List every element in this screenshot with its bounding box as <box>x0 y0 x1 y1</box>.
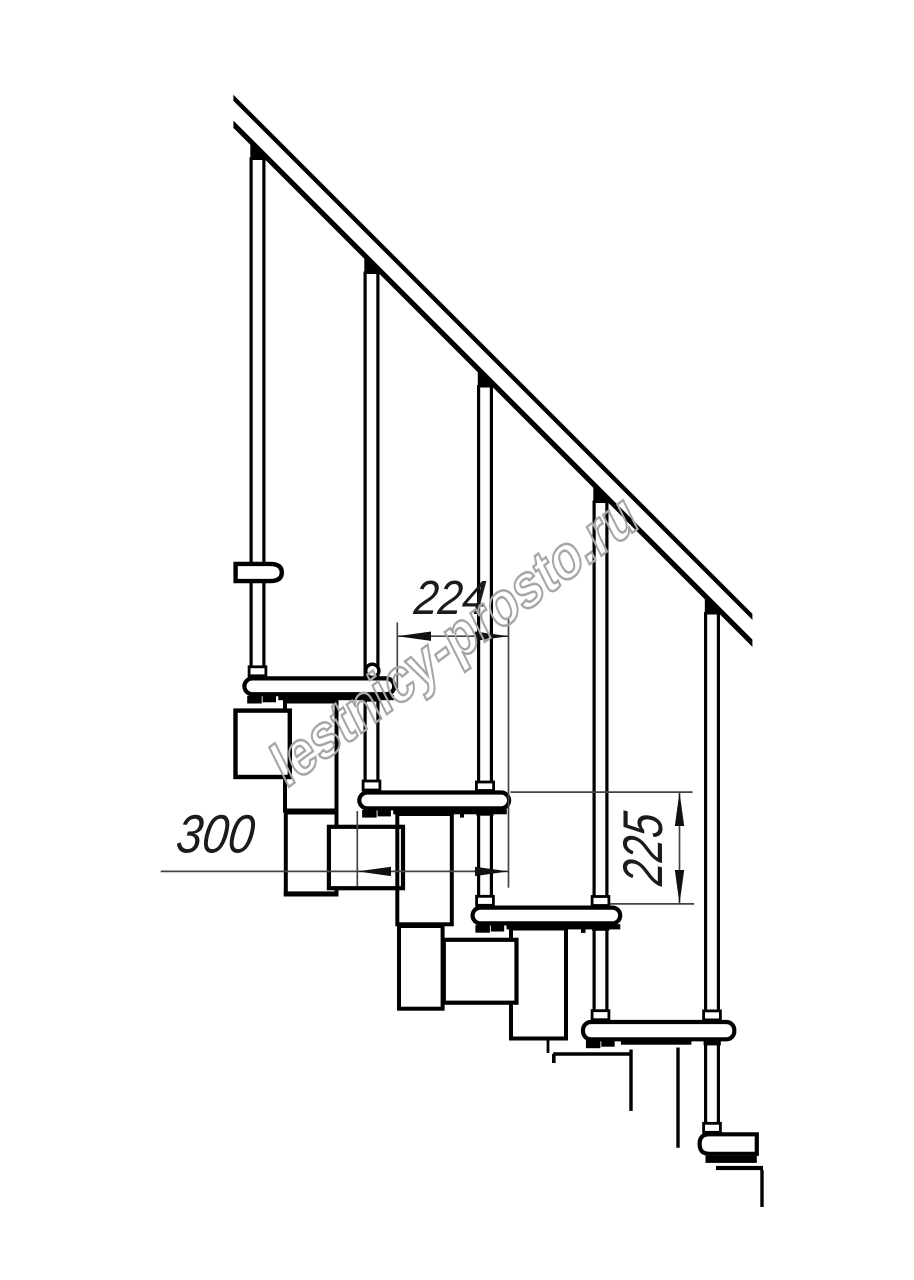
svg-text:300: 300 <box>173 803 258 864</box>
svg-text:225: 225 <box>612 809 675 889</box>
